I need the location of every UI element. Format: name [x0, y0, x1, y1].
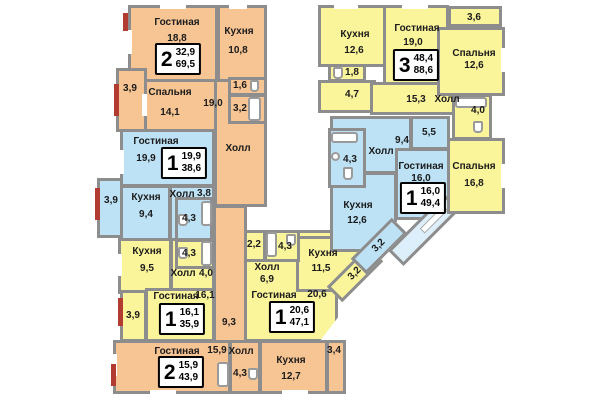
apartment-badge: 2 15,943,9	[158, 356, 204, 388]
badge-living-area: 48,4	[414, 53, 433, 65]
badge-room-count: 2	[164, 362, 176, 383]
apt7-bedroom2	[447, 138, 505, 214]
badge-total-area: 43,9	[179, 372, 198, 384]
badge-living-area: 20,6	[290, 305, 309, 317]
room-area-label: 3,2	[233, 104, 247, 114]
badge-living-area: 32,9	[176, 47, 195, 59]
room-area-label: 4,3	[278, 242, 292, 252]
room-area-label: 9,4	[395, 136, 409, 146]
room-area-label: 4,3	[182, 214, 196, 224]
room-name-label: Холл	[228, 347, 253, 357]
badge-total-area: 88,6	[414, 65, 433, 77]
apartment-badge: 3 48,488,6	[393, 49, 439, 81]
badge-total-area: 35,9	[180, 319, 199, 331]
room-area-label: 5,5	[422, 128, 436, 138]
room-area-label: 19,0	[403, 38, 422, 48]
room-area-label: 10,8	[228, 46, 247, 56]
wall-segment	[258, 343, 262, 391]
window-marker	[229, 5, 247, 9]
bathtub-icon	[201, 201, 212, 226]
room-area-label: 11,5	[312, 264, 331, 274]
badge-living-area: 16,1	[180, 307, 199, 319]
badge-room-count: 1	[165, 309, 177, 330]
room-name-label: Кухня	[340, 30, 369, 40]
window-marker	[160, 5, 186, 9]
room-area-label: 3,6	[467, 13, 481, 23]
room-name-label: Спальня	[148, 88, 191, 98]
room-name-label: Гостиная	[154, 18, 199, 28]
badge-total-area: 69,5	[176, 59, 195, 71]
room-name-label: Гостиная	[251, 291, 296, 301]
wall-segment	[169, 241, 173, 291]
room-name-label: Кухня	[131, 193, 160, 203]
window-marker	[119, 150, 124, 174]
room-name-label: Кухня	[224, 27, 253, 37]
toilet-icon	[343, 167, 353, 180]
balcony-window-marker	[123, 13, 128, 31]
room-area-label: 20,6	[307, 290, 326, 300]
apartment-badge: 2 32,969,5	[155, 43, 201, 75]
badge-living-area: 16,0	[421, 186, 440, 198]
window-marker	[142, 94, 147, 116]
apartment-badge: 1 20,647,1	[269, 301, 315, 333]
bathtub-icon	[201, 241, 212, 266]
wall-segment	[215, 8, 220, 79]
bathtub-icon	[331, 132, 358, 143]
toilet-icon	[473, 121, 483, 133]
room-area-label: 15,3	[406, 95, 425, 105]
room-name-label: Гостиная	[394, 24, 439, 34]
floor-plan-canvas: Гостиная 18,8 Кухня 10,8 3,9 Спальня 14,…	[0, 0, 600, 400]
room-area-label: 19,0	[203, 99, 222, 109]
room-area-label: 16,1	[195, 291, 214, 301]
room-area-label: 9,4	[139, 210, 153, 220]
badge-room-count: 1	[406, 188, 418, 209]
room-name-label: Спальня	[452, 162, 495, 172]
room-area-label: 12,7	[281, 372, 300, 382]
bathtub-icon	[217, 362, 229, 387]
room-name-label: Холл	[434, 95, 459, 105]
balcony-window-marker	[111, 364, 116, 386]
room-area-label: 4,0	[199, 269, 213, 279]
window-marker	[501, 48, 505, 72]
room-name-label: Холл	[170, 269, 195, 279]
toilet-icon	[250, 80, 259, 92]
room-area-label: 3,9	[104, 196, 118, 206]
bathtub-icon	[266, 232, 277, 257]
apartment-badge: 1 16,135,9	[159, 303, 205, 335]
toilet-icon	[333, 67, 343, 79]
window-marker	[501, 164, 505, 188]
room-area-label: 4,0	[471, 106, 485, 116]
sink-icon	[331, 152, 340, 161]
badge-living-area: 15,9	[179, 360, 198, 372]
room-area-label: 6,9	[260, 275, 274, 285]
badge-room-count: 1	[167, 153, 179, 174]
window-marker	[150, 390, 176, 395]
window-marker	[402, 5, 428, 9]
room-area-label: 12,6	[464, 61, 483, 71]
window-marker	[117, 254, 122, 276]
room-area-label: 4,7	[345, 90, 359, 100]
room-name-label: Гостиная	[398, 162, 443, 172]
room-name-label: Холл	[169, 190, 194, 200]
room-name-label: Холл	[225, 144, 250, 154]
window-marker	[282, 390, 308, 395]
room-area-label: 3,9	[126, 311, 140, 321]
room-name-label: Кухня	[343, 201, 372, 211]
room-name-label: Гостиная	[153, 292, 198, 302]
room-area-label: 3,8	[197, 189, 211, 199]
room-area-label: 12,6	[347, 216, 366, 226]
room-area-label: 1,8	[345, 68, 359, 78]
room-area-label: 3,4	[327, 346, 341, 356]
room-area-label: 15,9	[207, 346, 226, 356]
badge-room-count: 3	[399, 55, 411, 76]
room-area-label: 2,2	[247, 240, 261, 250]
room-area-label: 4,3	[233, 369, 247, 379]
window-marker	[334, 5, 358, 9]
toilet-icon	[248, 368, 258, 380]
room-area-label: 1,6	[233, 81, 247, 91]
apt2-balcony	[97, 178, 123, 238]
badge-living-area: 19,9	[182, 151, 201, 163]
room-name-label: Кухня	[276, 356, 305, 366]
room-area-label: 12,6	[344, 46, 363, 56]
window-marker	[127, 30, 132, 54]
room-name-label: Холл	[254, 263, 279, 273]
badge-total-area: 47,1	[290, 317, 309, 329]
room-area-label: 16,8	[464, 179, 483, 189]
room-name-label: Кухня	[132, 247, 161, 257]
room-area-label: 19,9	[136, 154, 155, 164]
room-name-label: Кухня	[308, 249, 337, 259]
bathtub-icon	[248, 97, 261, 121]
balcony-window-marker	[114, 84, 119, 116]
room-name-label: Спальня	[452, 49, 495, 59]
badge-total-area: 49,4	[421, 198, 440, 210]
room-area-label: 9,5	[140, 264, 154, 274]
room-area-label: 9,3	[222, 318, 236, 328]
apartment-badge: 1 19,938,6	[161, 147, 207, 179]
balcony-window-marker	[118, 298, 123, 326]
room-area-label: 14,1	[160, 108, 179, 118]
badge-room-count: 1	[275, 307, 287, 328]
apartment-badge: 1 16,049,4	[400, 182, 446, 214]
room-name-label: Холл	[368, 147, 393, 157]
badge-room-count: 2	[161, 49, 173, 70]
room-area-label: 4,3	[343, 155, 357, 165]
balcony-window-marker	[95, 188, 100, 220]
badge-total-area: 38,6	[182, 163, 201, 175]
room-name-label: Гостиная	[133, 137, 178, 147]
room-area-label: 3,9	[123, 84, 137, 94]
room-area-label: 4,3	[182, 249, 196, 259]
